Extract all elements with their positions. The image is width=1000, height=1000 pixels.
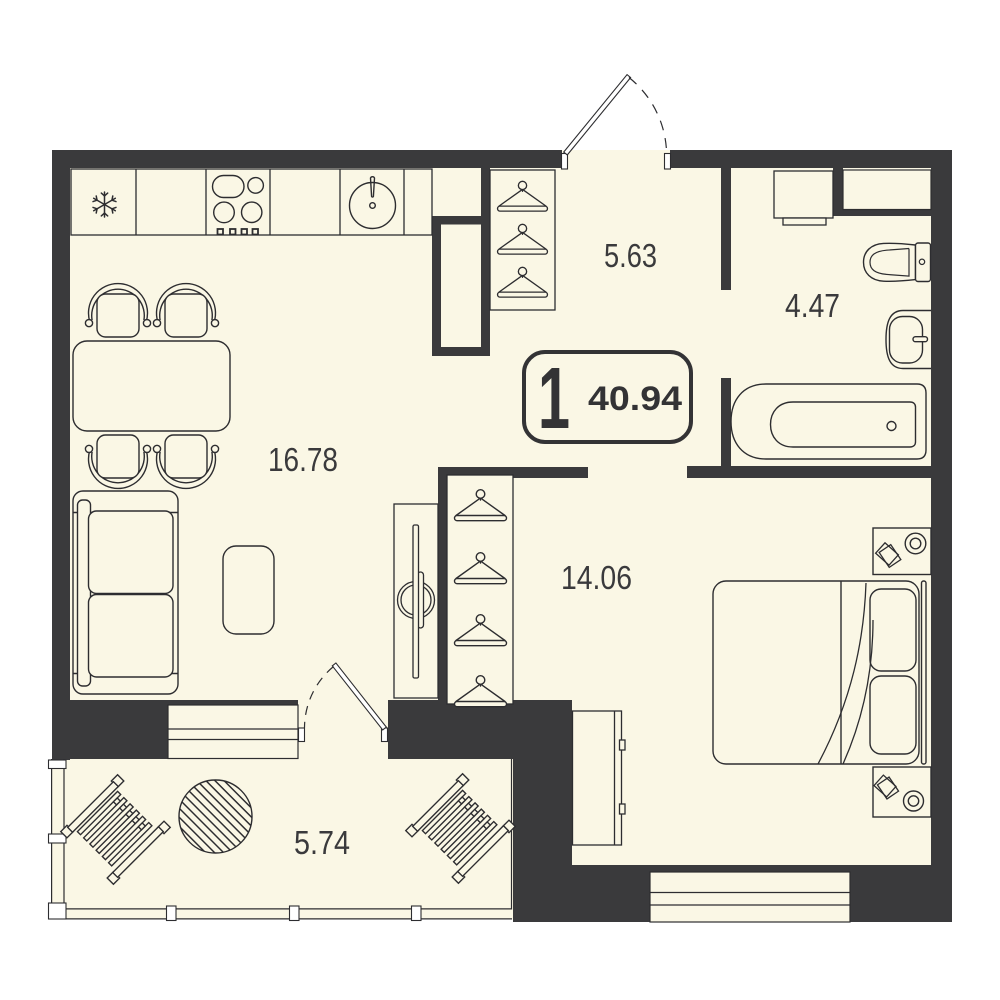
svg-text:1: 1 (538, 350, 570, 447)
svg-text:5.63: 5.63 (604, 237, 657, 274)
svg-text:5.74: 5.74 (294, 824, 350, 861)
svg-text:16.78: 16.78 (268, 441, 338, 478)
svg-text:4.47: 4.47 (785, 287, 840, 324)
svg-text:40.94: 40.94 (588, 380, 682, 418)
svg-text:14.06: 14.06 (561, 559, 632, 596)
